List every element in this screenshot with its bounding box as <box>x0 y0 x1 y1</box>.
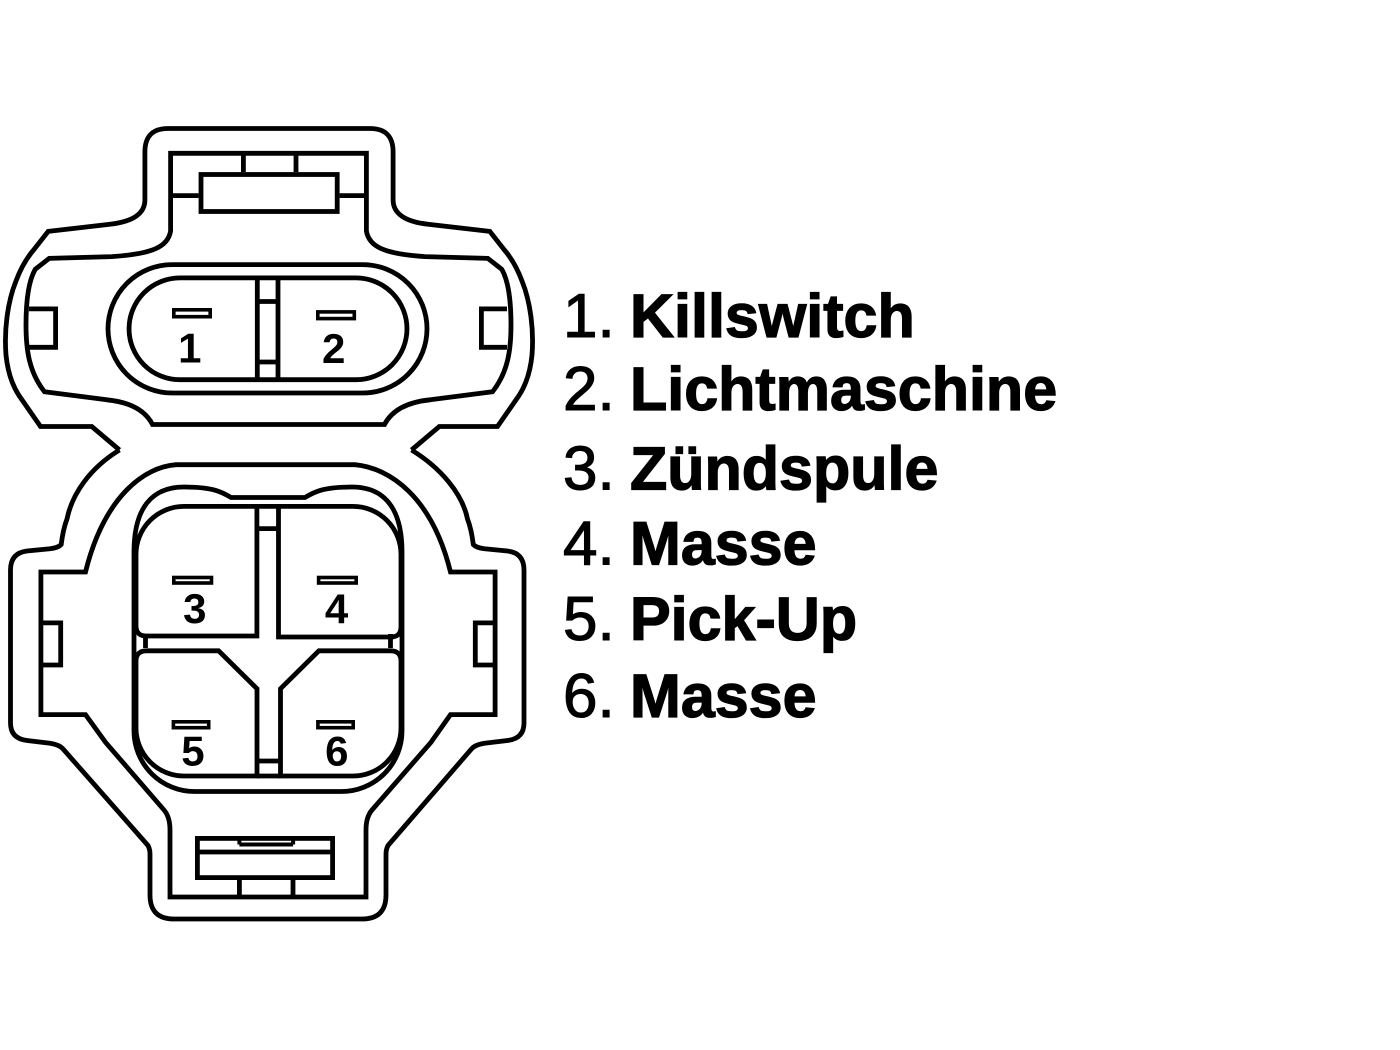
svg-text:5.: 5. <box>563 585 615 654</box>
svg-text:4: 4 <box>325 586 349 633</box>
svg-text:Killswitch: Killswitch <box>630 282 915 350</box>
svg-text:6: 6 <box>325 727 348 774</box>
svg-text:1: 1 <box>178 324 201 371</box>
svg-text:Zündspule: Zündspule <box>630 435 938 503</box>
svg-text:2.: 2. <box>563 355 615 424</box>
svg-text:3: 3 <box>183 585 206 632</box>
svg-text:Masse: Masse <box>630 662 817 730</box>
svg-text:3.: 3. <box>563 435 615 504</box>
svg-text:6.: 6. <box>563 662 615 731</box>
svg-text:1.: 1. <box>563 282 615 351</box>
svg-text:5: 5 <box>181 727 204 774</box>
svg-text:4.: 4. <box>563 510 615 579</box>
svg-text:Masse: Masse <box>630 510 817 578</box>
svg-text:Pick-Up: Pick-Up <box>630 585 857 653</box>
svg-text:Lichtmaschine: Lichtmaschine <box>630 355 1057 423</box>
svg-text:2: 2 <box>322 325 345 372</box>
